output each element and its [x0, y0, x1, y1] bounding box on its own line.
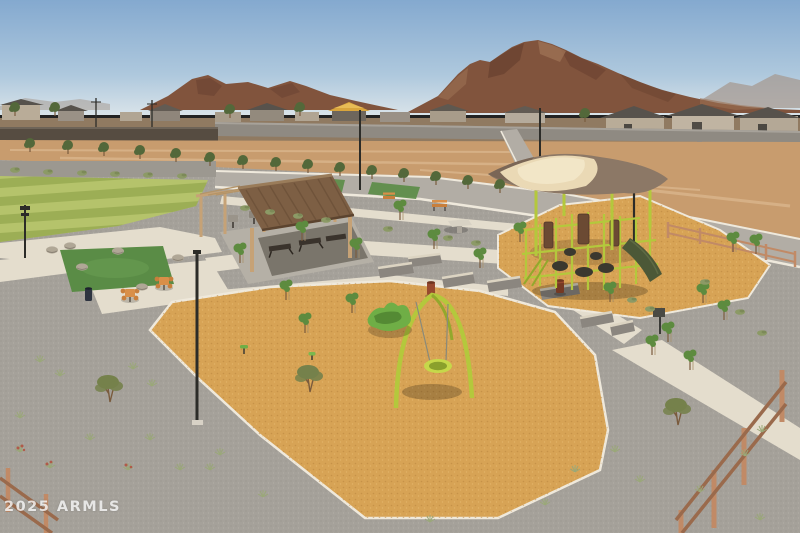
- photo-canvas: [0, 0, 800, 533]
- armls-watermark: 2025 ARMLS: [4, 499, 121, 515]
- aerial-park-photo: 2025 ARMLS: [0, 0, 800, 533]
